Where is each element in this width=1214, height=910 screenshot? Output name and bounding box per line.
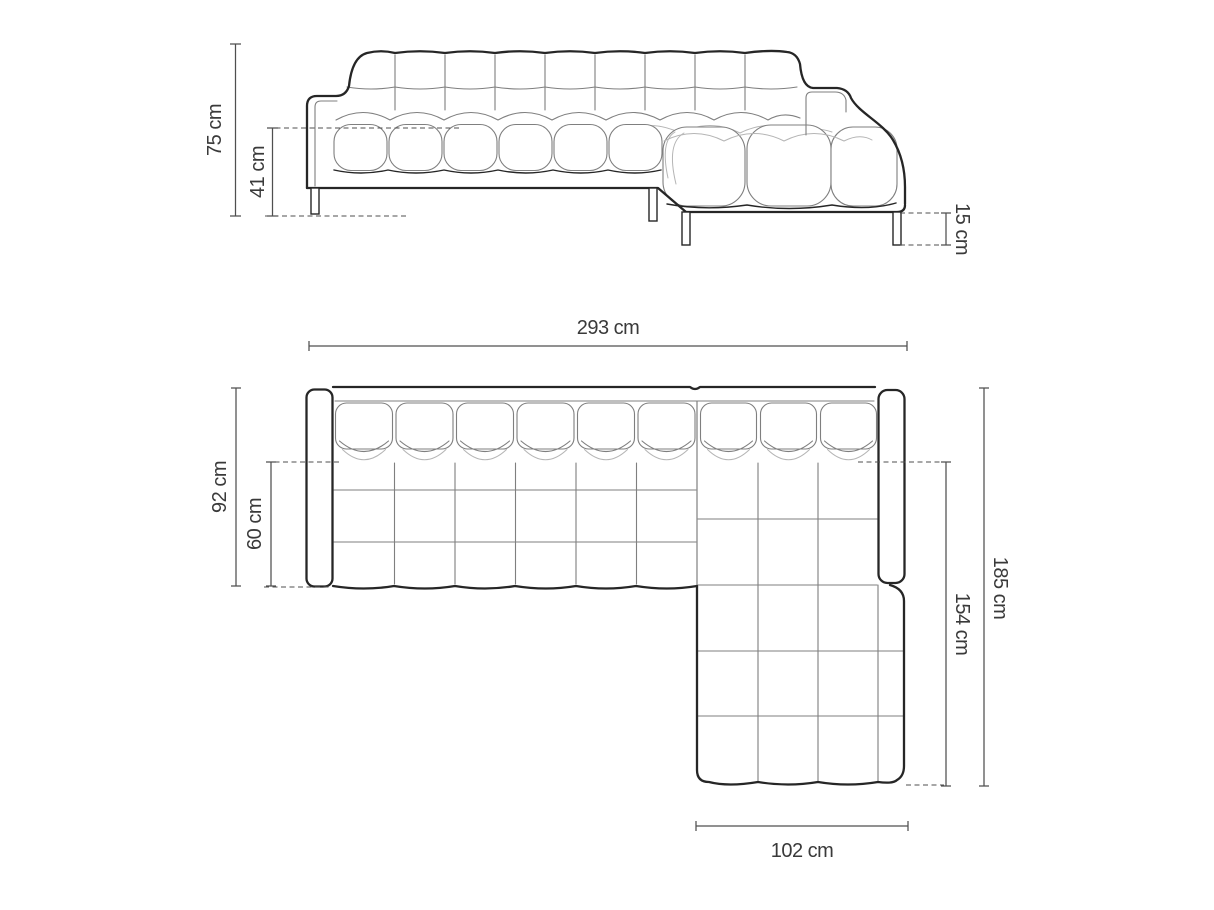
sofa-leg [649, 188, 657, 221]
plan-seat-grid-vertical [395, 463, 637, 584]
dimension-label-seat-depth: 60 cm [244, 498, 266, 550]
chaise-cushion [663, 127, 745, 206]
dimension-total-length: 185 cm [979, 388, 1011, 786]
plan-front-edge [333, 586, 697, 589]
cushion-outline [638, 403, 695, 449]
dimension-leg-height: 15 cm [941, 203, 973, 255]
plan-left-armrest [307, 390, 333, 587]
chaise-cushion [747, 125, 831, 206]
plan-right-armrest [879, 390, 905, 583]
dimension-label-chaise-width: 102 cm [771, 840, 834, 862]
plan-back-cushion [701, 403, 757, 460]
top-plan-view: 293 cm 92 cm 60 cm 185 cm 154 cm 102 cm [209, 317, 1011, 862]
cushion-outline [336, 403, 393, 449]
front-elevation-view: 75 cm 41 cm 15 cm [204, 44, 973, 255]
dimension-chaise-width: 102 cm [696, 821, 908, 862]
cushion-outline [457, 403, 514, 449]
dimension-line [230, 44, 241, 216]
dimension-line [266, 462, 276, 586]
sofa-leg [311, 188, 319, 214]
dimension-seat-depth: 60 cm [244, 462, 276, 586]
dimension-label-total-height: 75 cm [204, 104, 226, 156]
plan-back-cushion [517, 403, 574, 460]
dimension-total-width: 293 cm [309, 317, 907, 351]
dimension-label-seat-height: 41 cm [247, 146, 269, 198]
plan-back-cushion [336, 403, 393, 460]
seat-cushion [389, 125, 442, 171]
plan-back-edge [333, 387, 875, 389]
dimension-line [979, 388, 989, 786]
dimension-label-total-length: 185 cm [989, 557, 1011, 620]
plan-back-cushions [336, 403, 877, 460]
seat-cushion [444, 125, 497, 171]
dimension-line [941, 213, 951, 245]
backrest-tufting [347, 55, 797, 110]
dimension-total-height: 75 cm [204, 44, 241, 216]
plan-chaise-grid-horizontal [698, 519, 903, 716]
dimension-label-leg-height: 15 cm [951, 203, 973, 255]
plan-chaise-grid-vertical [758, 463, 878, 781]
dimension-line [309, 341, 907, 351]
seat-cushion [334, 125, 387, 171]
chaise-cushions [663, 125, 897, 209]
dimension-line [231, 388, 241, 586]
dimension-total-depth: 92 cm [209, 388, 241, 586]
dimension-line [696, 821, 908, 831]
seat-cushion [609, 125, 662, 171]
dimension-line [941, 462, 951, 786]
seat-scallop-row [336, 113, 800, 121]
chaise-cushion [831, 127, 897, 206]
plan-back-cushion [396, 403, 453, 460]
dimension-seat-height: 41 cm [247, 128, 278, 216]
seat-front-scallop [334, 170, 661, 173]
sofa-dimension-diagram: 75 cm 41 cm 15 cm [0, 0, 1214, 910]
dimension-label-chaise-length: 154 cm [951, 593, 973, 656]
cushion-outline [578, 403, 635, 449]
dimension-label-total-depth: 92 cm [209, 461, 231, 513]
plan-chaise-outline [697, 585, 904, 785]
sofa-leg [682, 212, 690, 245]
back-tuft-divider [395, 55, 745, 110]
cushion-outline [821, 403, 877, 449]
cushion-outline [761, 403, 817, 449]
seat-cushions [334, 125, 662, 174]
plan-back-cushion [821, 403, 877, 460]
cushion-outline [517, 403, 574, 449]
dimension-label-total-width: 293 cm [577, 317, 640, 339]
cushion-outline [396, 403, 453, 449]
seat-cushion [499, 125, 552, 171]
plan-back-cushion [457, 403, 514, 460]
plan-back-cushion [638, 403, 695, 460]
plan-back-cushion [578, 403, 635, 460]
sofa-leg [893, 212, 901, 245]
seat-cushion [554, 125, 607, 171]
back-tuft-seamline [347, 87, 797, 89]
plan-back-cushion [761, 403, 817, 460]
dimension-chaise-length: 154 cm [941, 462, 973, 786]
diagram-canvas: 75 cm 41 cm 15 cm [0, 0, 1214, 910]
cushion-outline [701, 403, 757, 449]
